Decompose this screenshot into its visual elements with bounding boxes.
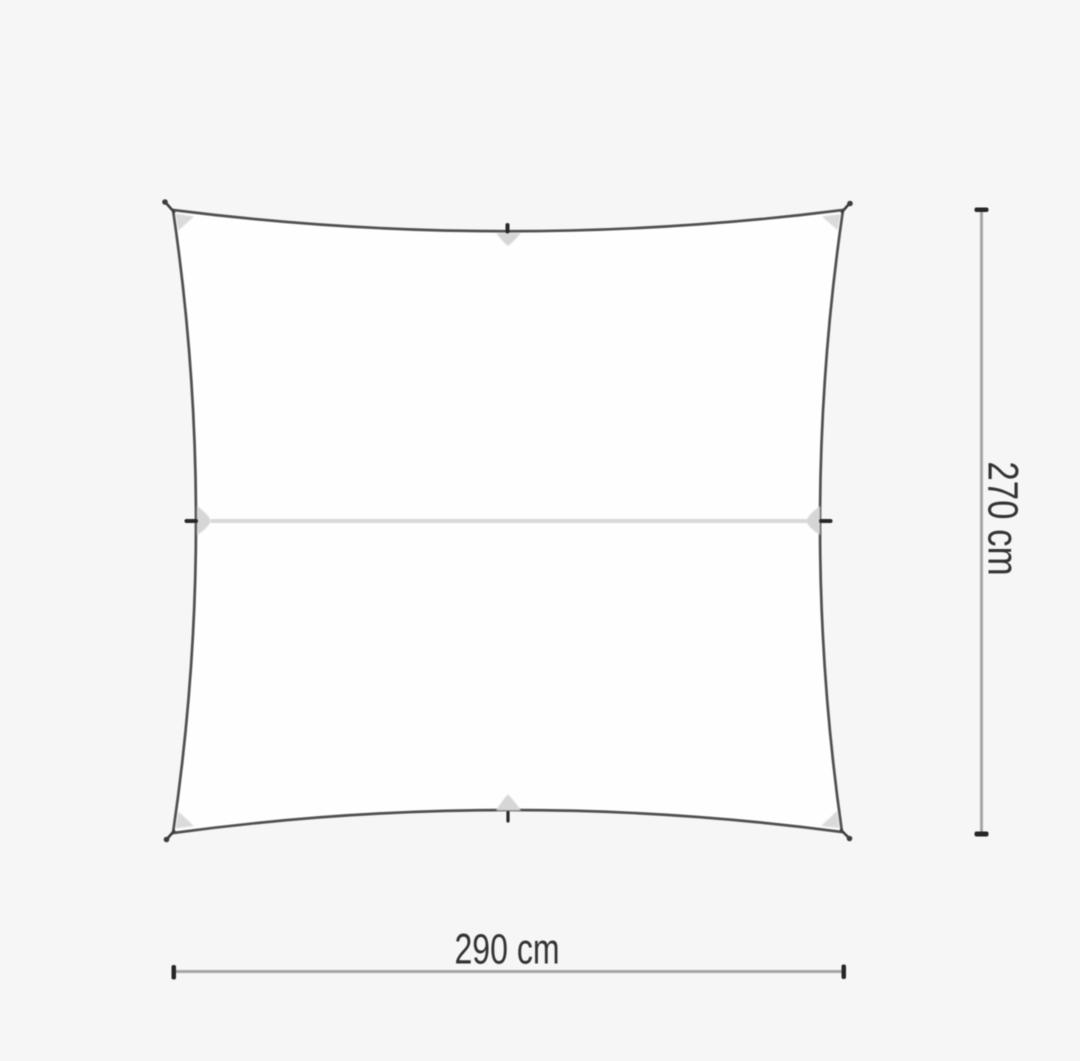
- svg-text:270 cm: 270 cm: [979, 461, 1026, 575]
- svg-text:290 cm: 290 cm: [454, 926, 559, 974]
